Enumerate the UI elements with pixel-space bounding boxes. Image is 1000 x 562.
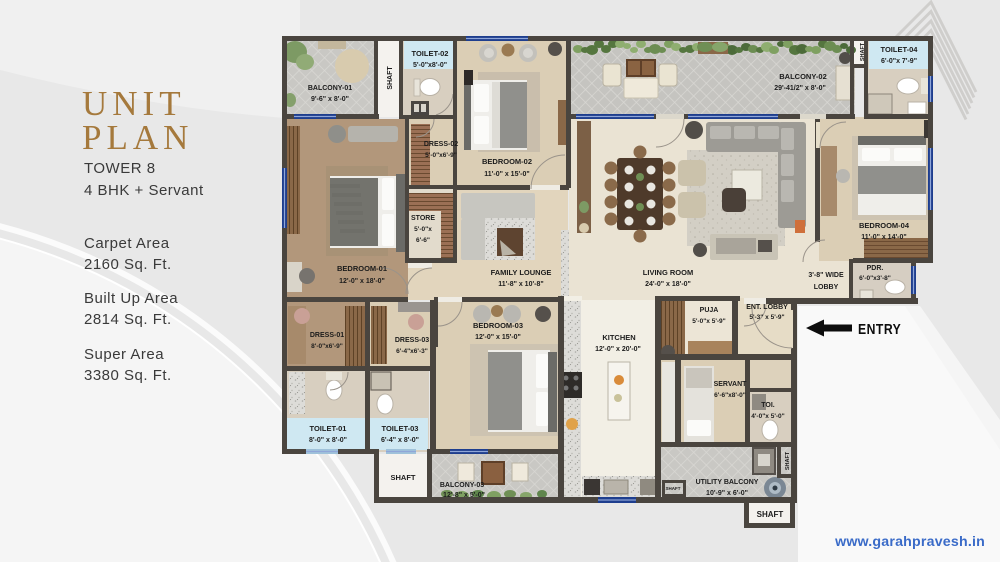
svg-text:6'-0"x3'-8": 6'-0"x3'-8" [859, 275, 891, 282]
svg-text:TOILET-01: TOILET-01 [310, 424, 347, 433]
svg-text:9'-6" x 8'-0": 9'-6" x 8'-0" [311, 96, 349, 103]
svg-text:PUJA: PUJA [700, 307, 719, 314]
svg-text:BALCONY-02: BALCONY-02 [779, 72, 827, 81]
svg-text:29'-41/2" x 8'-0": 29'-41/2" x 8'-0" [774, 85, 826, 92]
svg-text:10'-9" x 6'-0": 10'-9" x 6'-0" [706, 490, 748, 497]
svg-text:12'-0" x 18'-0": 12'-0" x 18'-0" [339, 278, 385, 285]
svg-text:SHAFT: SHAFT [666, 486, 681, 491]
svg-text:BEDROOM-03: BEDROOM-03 [473, 321, 523, 330]
svg-text:TOI.: TOI. [761, 402, 775, 409]
svg-text:8'-0"x6'-9": 8'-0"x6'-9" [311, 343, 343, 350]
svg-text:11'-0" x 15'-0": 11'-0" x 15'-0" [484, 171, 529, 178]
svg-text:LOBBY: LOBBY [814, 284, 839, 291]
svg-text:24'-0" x 18'-0": 24'-0" x 18'-0" [645, 281, 691, 288]
svg-text:SHAFT: SHAFT [387, 66, 394, 90]
svg-text:12'-8" x 5'-0": 12'-8" x 5'-0" [443, 492, 485, 499]
svg-text:SHAFT: SHAFT [860, 42, 866, 61]
svg-text:5'-0"x8'-0": 5'-0"x8'-0" [413, 62, 447, 69]
svg-text:8'-0" x 8'-0": 8'-0" x 8'-0" [309, 437, 347, 444]
svg-text:TOILET-03: TOILET-03 [382, 424, 419, 433]
svg-text:TOILET-04: TOILET-04 [881, 45, 919, 54]
svg-text:DRESS-01: DRESS-01 [310, 332, 344, 339]
svg-text:SHAFT: SHAFT [785, 451, 791, 470]
svg-text:5'-0"x6'-9": 5'-0"x6'-9" [425, 152, 457, 159]
svg-text:6'-0"x 7'-9": 6'-0"x 7'-9" [881, 58, 917, 65]
svg-text:ENT. LOBBY: ENT. LOBBY [746, 304, 788, 311]
svg-text:11'-8" x 10'-8": 11'-8" x 10'-8" [498, 281, 543, 288]
svg-text:BEDROOM-02: BEDROOM-02 [482, 157, 532, 166]
svg-text:STORE: STORE [411, 215, 435, 222]
svg-text:TOILET-02: TOILET-02 [412, 49, 449, 58]
svg-text:FAMILY LOUNGE: FAMILY LOUNGE [491, 268, 552, 277]
svg-text:ENTRY: ENTRY [858, 321, 901, 337]
svg-text:PDR.: PDR. [867, 265, 884, 272]
svg-text:LIVING ROOM: LIVING ROOM [643, 268, 693, 277]
svg-text:BEDROOM-04: BEDROOM-04 [859, 221, 910, 230]
svg-text:SHAFT: SHAFT [757, 510, 784, 519]
svg-text:BALCONY-01: BALCONY-01 [308, 85, 352, 92]
svg-text:DRESS-03: DRESS-03 [395, 337, 429, 344]
svg-text:UTILITY BALCONY: UTILITY BALCONY [696, 479, 759, 486]
svg-text:5'-0"x 5'-9": 5'-0"x 5'-9" [692, 318, 725, 325]
svg-text:4'-0"x 5'-0": 4'-0"x 5'-0" [751, 413, 784, 420]
svg-text:BEDROOM-01: BEDROOM-01 [337, 264, 387, 273]
svg-text:5'-0"x: 5'-0"x [414, 226, 432, 233]
svg-text:12'-0" x 15'-0": 12'-0" x 15'-0" [475, 334, 521, 341]
svg-text:6'-4"x6'-3": 6'-4"x6'-3" [396, 348, 428, 355]
svg-text:KITCHEN: KITCHEN [602, 333, 635, 342]
svg-text:12'-0" x 20'-0": 12'-0" x 20'-0" [595, 346, 641, 353]
svg-text:6'-6": 6'-6" [416, 237, 430, 244]
svg-text:5'-3" x 5'-9": 5'-3" x 5'-9" [749, 314, 784, 321]
svg-text:6'-4" x 8'-0": 6'-4" x 8'-0" [381, 437, 419, 444]
svg-text:6'-6"x8'-0": 6'-6"x8'-0" [714, 392, 746, 399]
svg-text:BALCONY-03: BALCONY-03 [440, 482, 484, 489]
svg-text:11'-0" x 14'-0": 11'-0" x 14'-0" [861, 234, 906, 241]
svg-text:SHAFT: SHAFT [391, 473, 416, 482]
svg-text:SERVANT: SERVANT [714, 381, 748, 388]
svg-text:DRESS-02: DRESS-02 [424, 141, 458, 148]
svg-text:3'-8" WIDE: 3'-8" WIDE [808, 272, 844, 279]
